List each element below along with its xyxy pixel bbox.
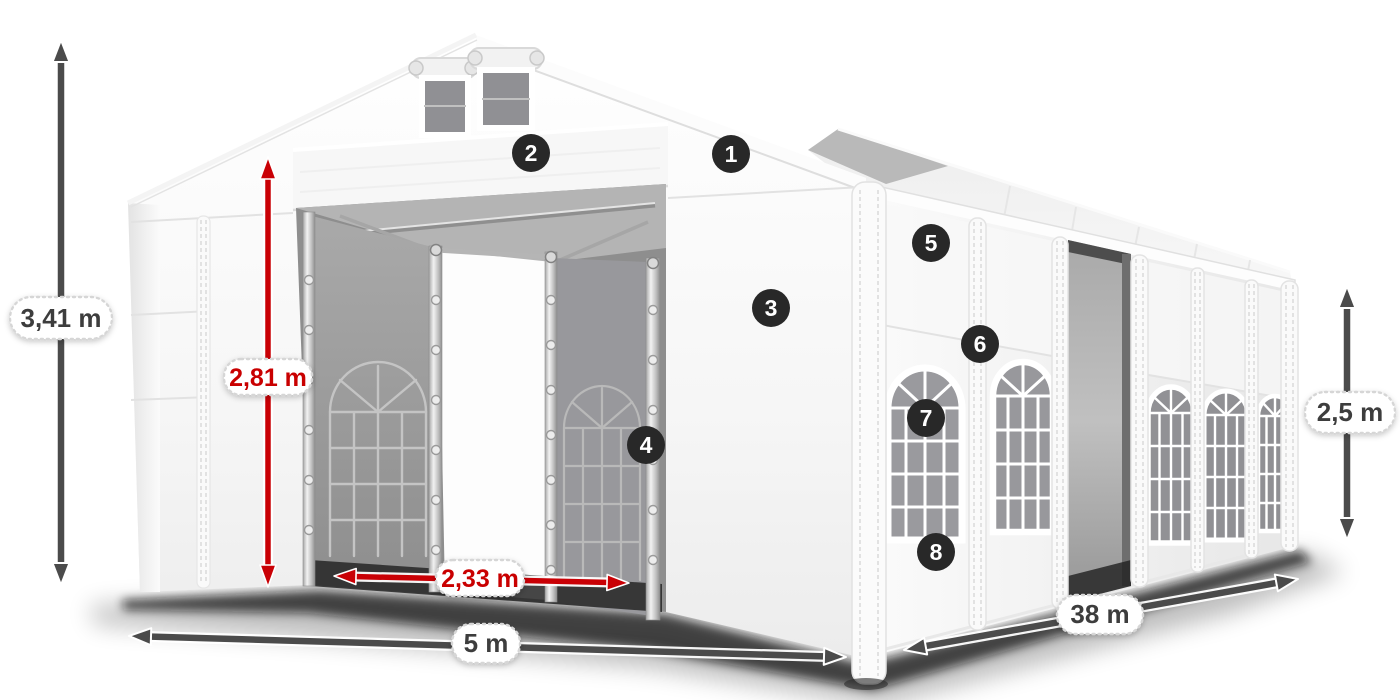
tent-dimension-diagram: 3,41 m 2,81 m 2,33 m 5 m 38 m 2,5 m 1 2 bbox=[0, 0, 1400, 700]
svg-text:3: 3 bbox=[765, 295, 778, 321]
svg-text:5 m: 5 m bbox=[464, 628, 509, 658]
tent-illustration: 3,41 m 2,81 m 2,33 m 5 m 38 m 2,5 m 1 2 bbox=[0, 0, 1400, 700]
callout-1[interactable]: 1 bbox=[712, 135, 750, 173]
side-window bbox=[1204, 391, 1248, 540]
dimension-width-label: 5 m bbox=[452, 624, 520, 663]
dimension-length-label: 38 m bbox=[1057, 595, 1143, 634]
side-window bbox=[993, 362, 1053, 532]
svg-text:2: 2 bbox=[525, 140, 538, 166]
callout-8[interactable]: 8 bbox=[917, 533, 955, 571]
door-leaf-left bbox=[312, 216, 436, 590]
dimension-total-height-label: 3,41 m bbox=[10, 297, 112, 339]
gable-vent-window bbox=[409, 58, 479, 135]
front-left-pillar bbox=[197, 216, 210, 588]
svg-text:5: 5 bbox=[925, 230, 938, 256]
callout-7[interactable]: 7 bbox=[907, 399, 945, 437]
gable-vent-window bbox=[468, 48, 544, 128]
svg-text:2,81 m: 2,81 m bbox=[229, 364, 307, 392]
svg-text:6: 6 bbox=[974, 331, 987, 357]
callout-6[interactable]: 6 bbox=[961, 325, 999, 363]
side-window bbox=[1148, 387, 1194, 543]
side-window bbox=[888, 368, 962, 540]
callout-3[interactable]: 3 bbox=[752, 289, 790, 327]
front-left-corner bbox=[128, 203, 160, 592]
side-entrance-opening bbox=[1068, 240, 1131, 602]
svg-text:8: 8 bbox=[930, 539, 943, 565]
svg-text:7: 7 bbox=[920, 405, 933, 431]
svg-text:4: 4 bbox=[640, 432, 653, 458]
svg-text:1: 1 bbox=[725, 141, 738, 167]
callout-5[interactable]: 5 bbox=[912, 224, 950, 262]
svg-text:2,33 m: 2,33 m bbox=[441, 565, 519, 593]
doorway-passage bbox=[438, 248, 548, 600]
callout-4[interactable]: 4 bbox=[627, 426, 665, 464]
svg-text:38 m: 38 m bbox=[1070, 599, 1129, 629]
dimension-side-height-label: 2,5 m bbox=[1305, 392, 1395, 433]
svg-text:3,41 m: 3,41 m bbox=[21, 303, 102, 333]
dimension-door-height-label: 2,81 m bbox=[224, 359, 312, 395]
svg-text:2,5 m: 2,5 m bbox=[1317, 397, 1384, 427]
dimension-door-width-label: 2,33 m bbox=[436, 560, 524, 596]
front-doorway bbox=[296, 184, 666, 620]
callout-2[interactable]: 2 bbox=[512, 134, 550, 172]
